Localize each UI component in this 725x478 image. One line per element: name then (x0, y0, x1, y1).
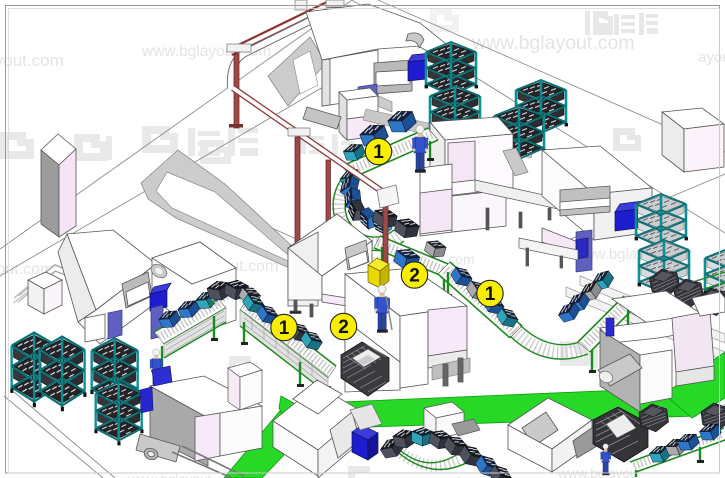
svg-text:www.b: www.b (424, 474, 465, 478)
svg-text:www.bglayout.com: www.bglayout.com (0, 51, 64, 70)
svg-text:www.bglayout.com: www.bglayout.com (471, 32, 635, 54)
svg-text:1: 1 (279, 318, 290, 339)
svg-text:1: 1 (373, 142, 384, 163)
svg-text:2: 2 (409, 266, 420, 287)
svg-text:www.bglayou: www.bglayou (557, 466, 638, 478)
svg-text:2: 2 (338, 317, 349, 338)
svg-text:ayout.c: ayout.c (698, 49, 725, 66)
svg-text:1: 1 (485, 284, 496, 305)
